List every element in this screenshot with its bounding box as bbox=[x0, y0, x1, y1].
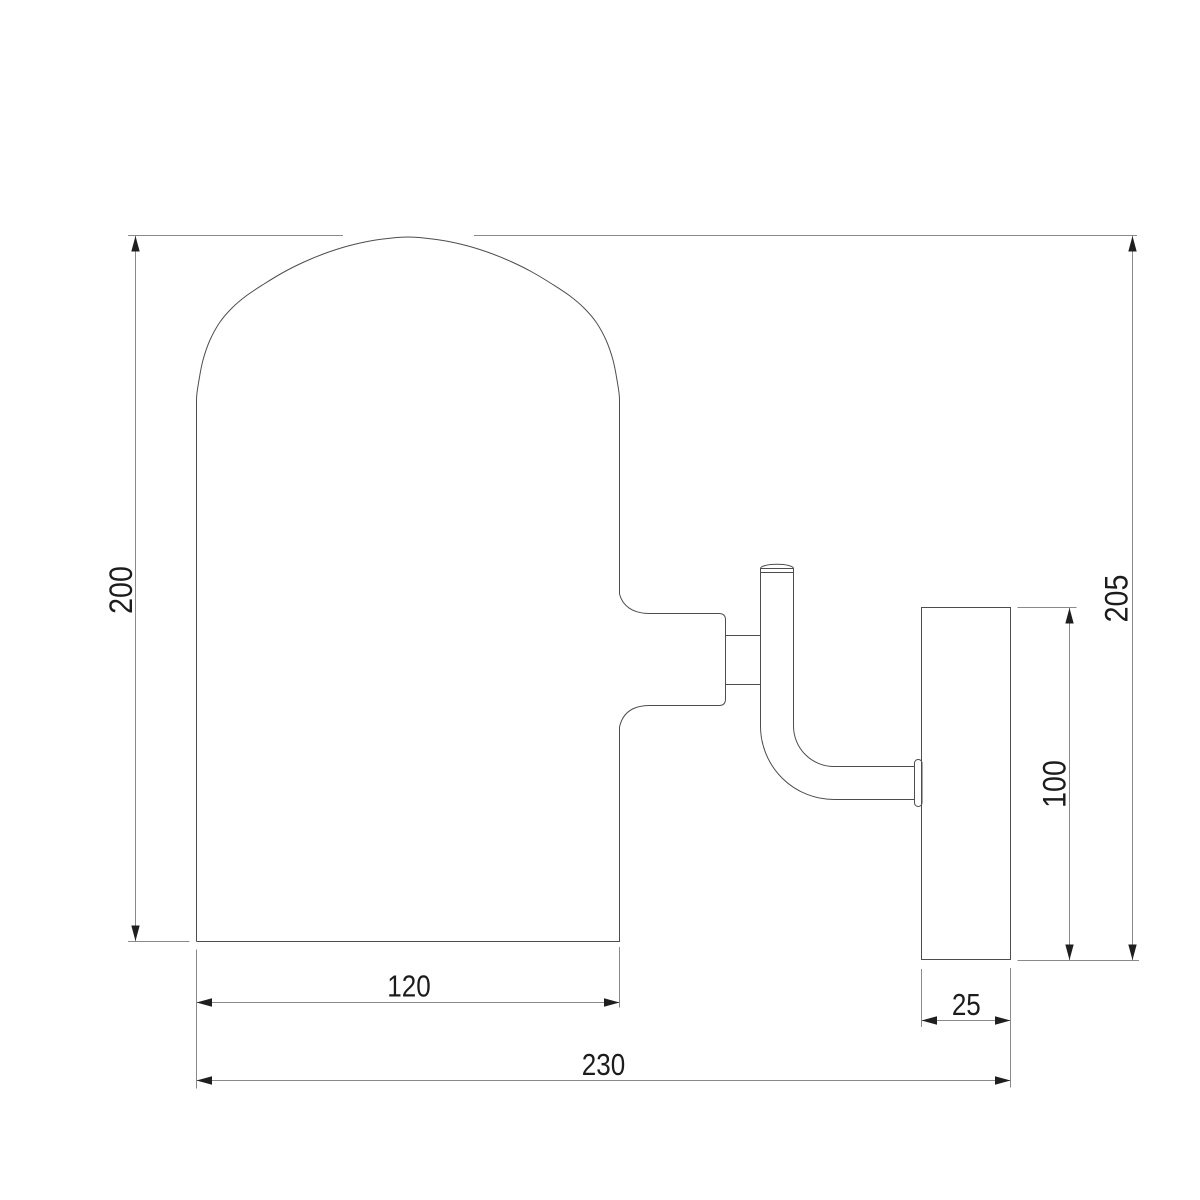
svg-text:200: 200 bbox=[103, 566, 139, 614]
svg-text:25: 25 bbox=[952, 988, 981, 1023]
svg-text:100: 100 bbox=[1037, 760, 1073, 808]
svg-text:120: 120 bbox=[387, 969, 430, 1004]
svg-text:230: 230 bbox=[582, 1048, 625, 1083]
svg-text:205: 205 bbox=[1099, 575, 1135, 623]
